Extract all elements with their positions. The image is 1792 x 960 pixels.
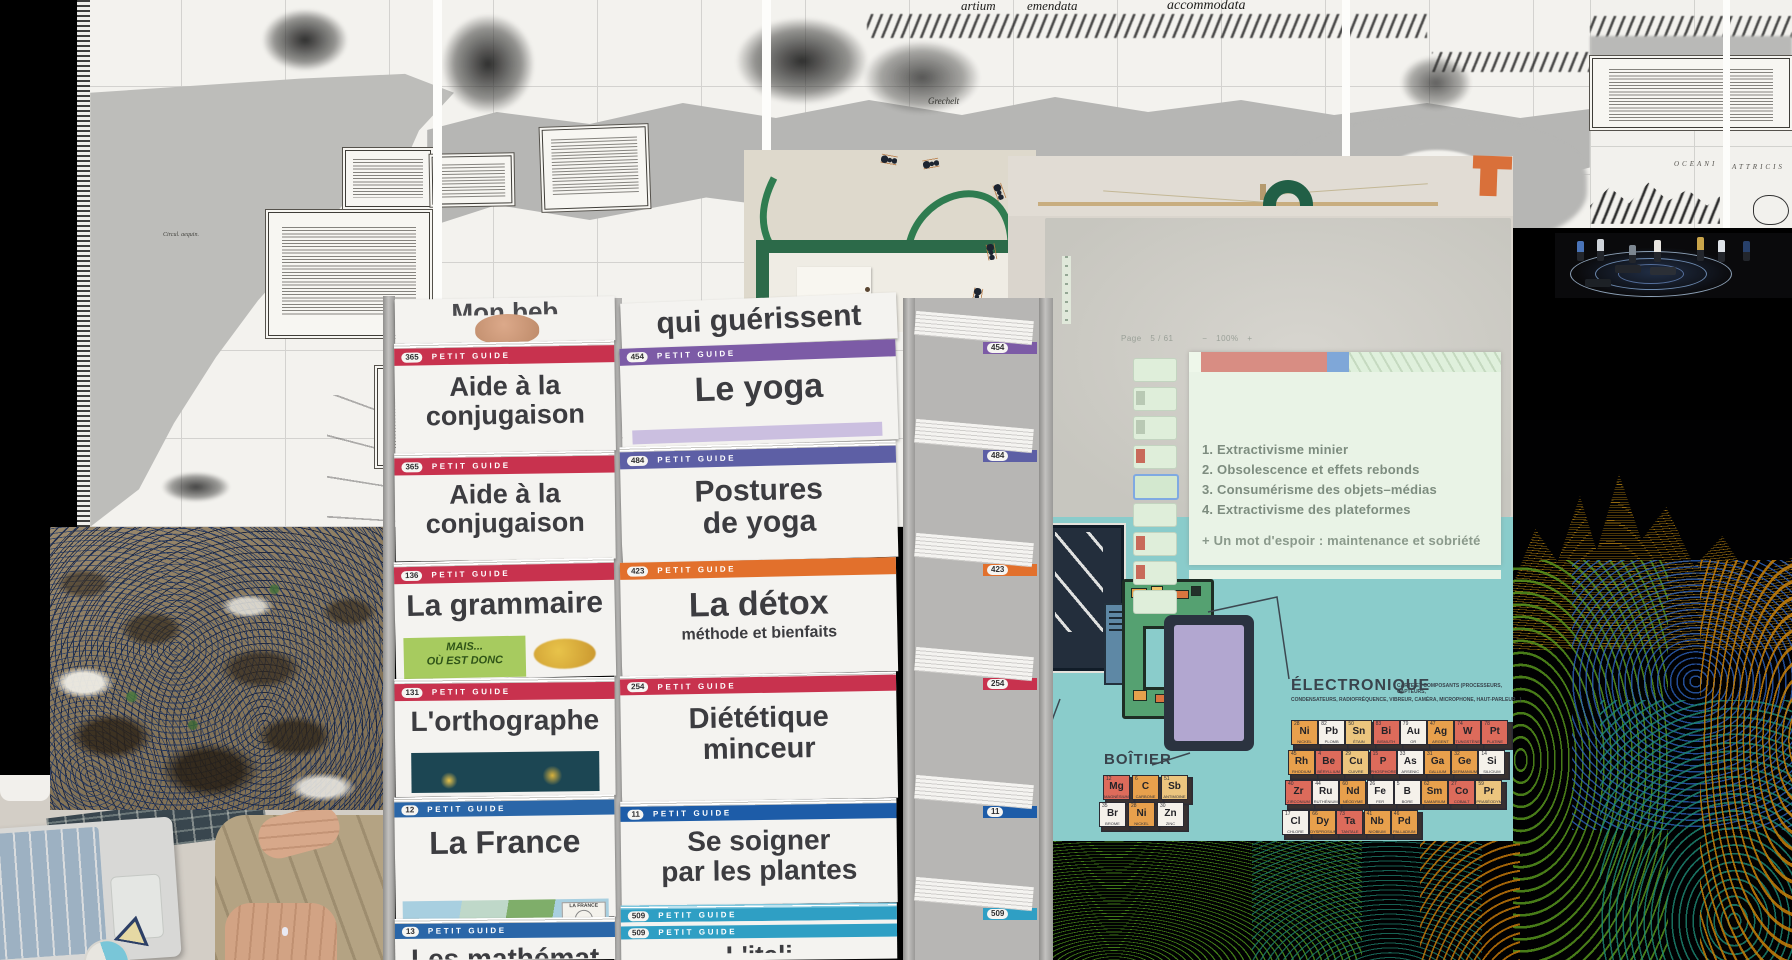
element-cube-Dy: 66DyDYSPROSIUM: [1309, 810, 1336, 835]
slide-header-blue: [1327, 352, 1349, 372]
map-sheet-gutter: [1723, 0, 1730, 235]
booklet-title: Aide à la conjugaison: [395, 478, 616, 539]
booklet-number-badge: 12: [401, 805, 418, 815]
keyboard: [0, 827, 107, 960]
macbook: [0, 816, 182, 960]
booklet-number-badge: 13: [402, 926, 419, 936]
element-cube-As: 33AsARSENIC: [1397, 750, 1424, 775]
person-figure: [1629, 245, 1636, 263]
pdf-thumbnail[interactable]: [1133, 503, 1177, 527]
presentation-projection-photo[interactable]: Page 5 / 61 − 100% + 1. Extractivisme mi…: [1008, 156, 1513, 517]
baby-head-photo: [475, 313, 540, 344]
map-sea: [1590, 36, 1792, 58]
booklet-dietetique[interactable]: 254 PETIT GUIDE Diététique minceur: [620, 672, 898, 803]
booklet-la-france[interactable]: 12 PETIT GUIDE La France LA FRANCE: [394, 794, 616, 919]
series-label: PETIT GUIDE: [657, 681, 736, 691]
zoom-out-button[interactable]: −: [1202, 334, 1207, 343]
map-ocean-label: ATTRICIS: [1732, 163, 1785, 171]
element-cube-Cl: 17ClCHLORE: [1282, 810, 1309, 835]
electronics-illustration[interactable]: BOÎTIER ÉLECTRONIQUE CARTE ET COMPOSANTS…: [1052, 517, 1513, 841]
booklet-number-badge: 423: [627, 566, 649, 576]
element-cube-Fe: 26FeFER: [1367, 780, 1394, 805]
slide-header-green: [1349, 352, 1501, 372]
sticky-note: MAIS... OÙ EST DONC: [403, 636, 526, 680]
page-slash: /: [1158, 334, 1161, 343]
element-cube-Cu: 29CuCUIVRE: [1342, 750, 1369, 775]
rack-rail: [383, 296, 395, 960]
element-cube-Bi: 83BiBISMUTH: [1373, 720, 1400, 745]
element-cube-B: 5BBORE: [1394, 780, 1421, 805]
rack-rail: [903, 298, 915, 960]
booklet-bottom-left[interactable]: 13 PETIT GUIDE Les mathémat: [395, 917, 615, 960]
slide-footer-line: + Un mot d'espoir : maintenance et sobri…: [1202, 531, 1491, 551]
map-equator-label: Circul. aequin.: [163, 232, 199, 238]
map-title-fragment: emendata: [1027, 0, 1078, 14]
booklet-number-badge: 365: [401, 352, 423, 362]
booklet-title-partial: Les mathémat: [395, 943, 615, 960]
map-text-panel: [345, 150, 431, 207]
person-figure: [1597, 239, 1604, 261]
map-title-fragment: artium: [961, 0, 996, 14]
booklet-detox[interactable]: 423 PETIT GUIDE La détox méthode et bien…: [620, 557, 898, 677]
projected-pdf-viewer: Page 5 / 61 − 100% + 1. Extractivisme mi…: [1045, 218, 1511, 517]
contour-orange-right: [1700, 560, 1792, 960]
element-cube-Ni: 28NiNICKEL: [1291, 720, 1318, 745]
booklet-title: Se soigner par les plantes: [621, 824, 898, 888]
element-cube-Ta: 73TaTANTALE: [1336, 810, 1363, 835]
series-label: PETIT GUIDE: [657, 564, 736, 575]
series-label: PETIT GUIDE: [432, 461, 511, 471]
page-current: 5: [1150, 334, 1155, 343]
antique-map-right-sheet[interactable]: OCEANI ATTRICIS: [1590, 0, 1792, 235]
person-figure: [1718, 240, 1725, 262]
pdf-thumbnail[interactable]: [1133, 561, 1177, 585]
cover-illustration: [533, 638, 596, 669]
slide-list-item: 3. Consumérisme des objets–médias: [1202, 480, 1491, 500]
element-cube-Ge: 32GeGERMANIUM: [1451, 750, 1478, 775]
pdf-thumbnail[interactable]: [1133, 416, 1177, 440]
element-cube-Pr: 59PrPRASÉODYME: [1475, 780, 1502, 805]
element-cube-Be: 4BeBÉRYLLIUM: [1315, 750, 1342, 775]
booklet-title-partial: qui guérissent: [620, 298, 897, 342]
pdf-next-page-strip: [1189, 570, 1501, 579]
element-cube-Sn: 50SnÉTAIN: [1345, 720, 1372, 745]
stage-performance-photo[interactable]: [1555, 233, 1792, 298]
series-label: PETIT GUIDE: [427, 804, 506, 814]
series-label: PETIT GUIDE: [432, 351, 511, 361]
rack-pocket-bg: [903, 298, 1053, 960]
booklet-title: La détox: [620, 583, 897, 625]
element-cube-Mg: 12MgMAGNÉSIUM: [1103, 775, 1130, 800]
element-cube-C: 6CCARBONE: [1132, 775, 1159, 800]
booklet-title: La grammaire: [394, 587, 615, 624]
pdf-toolbar[interactable]: Page 5 / 61 − 100% +: [1121, 334, 1253, 343]
map-sheet-gutter: [1342, 0, 1350, 160]
map-text-panel: [542, 126, 649, 210]
person-figure: [1577, 241, 1584, 261]
series-label: PETIT GUIDE: [658, 927, 737, 937]
booklet-title: Le yoga: [620, 365, 897, 411]
page-label: Page: [1121, 334, 1142, 343]
map-ornate-border: [77, 0, 90, 527]
cover-illustration: [411, 751, 599, 793]
hanger-stick: [1038, 202, 1438, 206]
map-text-band: [1592, 58, 1790, 128]
element-cube-Pt: 78PtPLATINE: [1481, 720, 1508, 745]
coffee-mug: [0, 775, 50, 801]
booklet-se-soigner[interactable]: 11 PETIT GUIDE Se soigner par les plante…: [620, 798, 897, 906]
inset-label: LA FRANCE: [563, 903, 605, 910]
element-cube-Ni: 28NiNICKEL: [1128, 802, 1155, 827]
element-cube-Sm: 62SmSAMARIUM: [1421, 780, 1448, 805]
booklet-number-badge: 509: [628, 911, 649, 921]
map-island: [1753, 195, 1789, 225]
series-label: PETIT GUIDE: [432, 687, 511, 697]
booklet-number-badge: 11: [627, 809, 644, 819]
booklet-conjugaison-1[interactable]: 365 PETIT GUIDE Aide à la conjugaison: [394, 340, 616, 454]
mining-aerial-photo[interactable]: [50, 527, 390, 810]
booklet-subtitle: méthode et bienfaits: [621, 622, 897, 645]
element-cube-Nd: 60NdNÉODYME: [1339, 780, 1366, 805]
collage-canvas: artium emendata accommodata Grechelt Cir…: [0, 0, 1792, 960]
booklet-title: Aide à la conjugaison: [395, 370, 616, 432]
booklet-number-badge: 509: [628, 928, 649, 938]
booklet-number-badge: 484: [627, 455, 649, 466]
electronique-caption: CONDENSATEURS, RADIOFRÉQUENCE, VIBREUR, …: [1291, 697, 1551, 703]
element-cube-Au: 79AuOR: [1400, 720, 1427, 745]
map-ocean-label: OCEANI: [1674, 160, 1717, 168]
slide-list-item: 4. Extractivisme des plateformes: [1202, 500, 1491, 520]
booklet-number-badge: 136: [401, 570, 423, 580]
person-figure: [1654, 240, 1661, 262]
sea-monster-figure: [152, 468, 240, 506]
series-label: PETIT GUIDE: [428, 926, 507, 936]
pdf-slide-page: 1. Extractivisme minier 2. Obsolescence …: [1189, 352, 1501, 565]
series-label: PETIT GUIDE: [658, 910, 737, 920]
element-cube-Sb: 51SbANTIMOINE: [1161, 775, 1188, 800]
zoom-level: 100%: [1216, 334, 1238, 343]
pdf-thumbnail[interactable]: [1133, 590, 1177, 614]
series-label: PETIT GUIDE: [657, 454, 736, 465]
map-sea-label: Grechelt: [928, 96, 959, 106]
booklet-grammaire[interactable]: 136 PETIT GUIDE La grammaire MAIS... OÙ …: [394, 558, 616, 681]
slide-header-red: [1201, 352, 1327, 372]
rack-rail: [1039, 298, 1053, 960]
booklet-orthographe[interactable]: 131 PETIT GUIDE L'orthographe: [394, 677, 615, 797]
booklet-title: Diététique minceur: [620, 701, 897, 768]
element-cube-Rh: 45RhRHODIUM: [1288, 750, 1315, 775]
person-figure: [1743, 241, 1750, 261]
element-cube-Co: 27CoCOBALT: [1448, 780, 1475, 805]
booklet-title: Postures de yoga: [620, 472, 898, 544]
booklet-rack[interactable]: Mon beb 365 PETIT GUIDE Aide à la conjug…: [383, 258, 1053, 960]
pdf-thumbnail[interactable]: [1133, 474, 1179, 500]
element-cube-Br: 35BrBROME: [1099, 802, 1126, 827]
slide-list-item: 2. Obsolescence et effets rebonds: [1202, 460, 1491, 480]
person-figure: [1697, 237, 1704, 261]
map-figure: [1390, 48, 1482, 118]
map-text-panel: [432, 155, 513, 204]
element-cube-Zn: 30ZnZINC: [1157, 802, 1184, 827]
booklet-conjugaison-2[interactable]: 365 PETIT GUIDE Aide à la conjugaison: [394, 450, 615, 561]
electronique-caption: CARTE ET COMPOSANTS (PROCESSEURS, CAPTEU…: [1397, 683, 1512, 695]
map-title-fragment: accommodata: [1167, 0, 1246, 14]
booklet-bottom-right[interactable]: 509 PETIT GUIDE 509 PETIT GUIDE L'itali: [621, 903, 898, 960]
booklet-postures-yoga[interactable]: 484 PETIT GUIDE Postures de yoga: [620, 441, 899, 564]
contour-band-orange: [1420, 841, 1520, 960]
element-cube-Pd: 46PdPALLADIUM: [1391, 810, 1418, 835]
boitier-label: BOÎTIER: [1104, 751, 1172, 768]
element-cube-Ga: 31GaGALLIUM: [1424, 750, 1451, 775]
person-figure: [1615, 265, 1641, 273]
element-cube-Ag: 47AgARGENT: [1427, 720, 1454, 745]
person-figure: [1650, 267, 1676, 275]
series-label: PETIT GUIDE: [657, 349, 736, 361]
page-total: 61: [1164, 334, 1174, 343]
booklet-title-partial: L'itali: [621, 940, 897, 955]
booklet-le-yoga[interactable]: 454 PETIT GUIDE Le yoga: [619, 339, 898, 449]
pdf-thumbnail[interactable]: [1133, 387, 1177, 411]
pdf-scroll-strip[interactable]: [1062, 256, 1071, 324]
booklet-number-badge: 131: [401, 687, 422, 697]
booklet-mon-bebe[interactable]: Mon beb: [395, 296, 616, 344]
element-cube-P: 15PPHOSPHORE: [1370, 750, 1397, 775]
element-cube-Ru: 44RuRUTHÉNIUM: [1312, 780, 1339, 805]
orange-t-logo-stem: [1479, 166, 1497, 197]
map-mountains: [1590, 16, 1792, 38]
booklet-number-badge: 365: [401, 462, 422, 472]
element-cube-Nb: 41NbNIOBIUM: [1364, 810, 1391, 835]
forearm-hand: [225, 903, 337, 960]
pdf-thumbnail[interactable]: [1133, 358, 1177, 382]
element-cube-Zr: 40ZrZIRCONIUM: [1285, 780, 1312, 805]
element-cube-W: 74WTUNGSTÈNE: [1454, 720, 1481, 745]
pdf-thumbnail[interactable]: [1133, 532, 1177, 556]
zoom-in-button[interactable]: +: [1247, 334, 1252, 343]
series-label: PETIT GUIDE: [431, 569, 510, 580]
booklet-title: La France: [395, 823, 615, 861]
element-cube-Si: 14SiSILICIUM: [1478, 750, 1505, 775]
booklet-title: L'orthographe: [395, 705, 615, 738]
booklet-number-badge: 454: [626, 351, 648, 362]
series-label: PETIT GUIDE: [653, 808, 732, 818]
pdf-thumbnail[interactable]: [1133, 445, 1177, 469]
booklet-number-badge: 254: [627, 682, 649, 692]
element-cube-Pb: 82PbPLOMB: [1318, 720, 1345, 745]
ring: [282, 927, 288, 936]
slide-list-item: 1. Extractivisme minier: [1202, 440, 1491, 460]
person-figure: [1585, 279, 1611, 287]
slide-header: [1189, 352, 1501, 372]
